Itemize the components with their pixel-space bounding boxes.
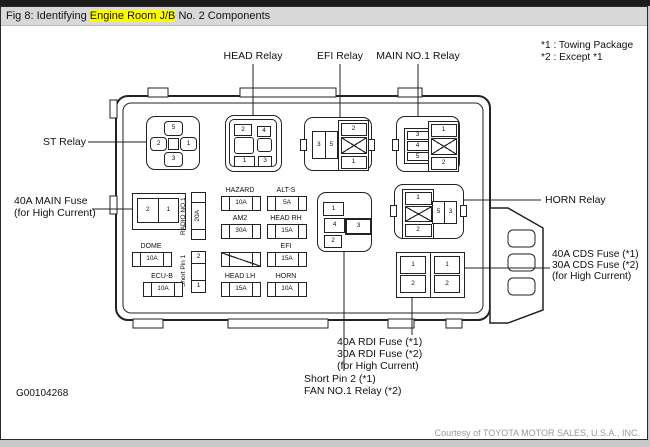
head-lh-fuse-amps: 15A <box>230 283 252 296</box>
st-relay-pin-top: 5 <box>164 121 183 136</box>
fan-relay-pin-4: 4 <box>324 218 345 233</box>
main-fuse-pin-1: 1 <box>158 199 179 222</box>
figure-viewer: Fig 8: Identifying Engine Room J/B No. 2… <box>0 0 650 447</box>
st-relay-pin-bottom: 3 <box>164 152 183 167</box>
head-relay-pin-2: 2 <box>234 124 252 136</box>
st-relay-pin-right: 1 <box>180 137 197 151</box>
dome-fuse-label: DOME <box>132 243 170 250</box>
hazard-fuse-label: HAZARD <box>221 187 259 194</box>
right-connector <box>490 208 543 323</box>
horn-relay-pin-5: 5 <box>433 202 444 223</box>
main-no1-relay-pins-345: 3 4 5 <box>404 128 431 164</box>
horn-relay-pins-53: 5 3 <box>432 201 457 224</box>
callout-short-pin2: Short Pin 2 (*1) FAN NO.1 Relay (*2) <box>304 373 401 397</box>
st-relay-pin-left: 2 <box>150 137 167 151</box>
callout-cds-fuse: 40A CDS Fuse (*1) 30A CDS Fuse (*2) (for… <box>552 249 639 282</box>
st-relay-center <box>168 138 179 150</box>
legend-note: *1 : Towing Package *2 : Except *1 <box>541 40 633 63</box>
callout-cds-line1: 40A CDS Fuse (*1) <box>552 249 639 260</box>
callout-main-fuse: 40A MAIN Fuse (for High Current) <box>14 195 96 219</box>
head-relay: 2 4 1 3 <box>225 115 282 172</box>
radio-no1-fuse: 20A <box>191 192 206 240</box>
main-no1-relay-pin-2: 2 <box>431 157 457 170</box>
horn-relay-pin-1: 1 <box>405 192 432 205</box>
alt-s-fuse: 5A <box>267 196 307 211</box>
efi-fuse: 15A <box>267 252 307 267</box>
head-relay-pin-4: 4 <box>257 126 271 137</box>
efi-relay-tab-left <box>300 139 307 151</box>
callout-head-relay: HEAD Relay <box>203 50 303 62</box>
legend-line-1: *1 : Towing Package <box>541 40 633 52</box>
dome-fuse: 10A <box>132 252 172 267</box>
fan-relay-pin-3: 3 <box>345 218 372 235</box>
dome-fuse-amps: 10A <box>141 253 163 266</box>
horn-relay-tab-right <box>460 205 467 217</box>
callout-rdi-line3: (for High Current) <box>337 360 422 372</box>
main-no1-relay-contact-box <box>431 138 457 155</box>
horn-fuse-label: HORN <box>267 273 305 280</box>
short-pin1-pin-1: 1 <box>192 280 205 292</box>
head-relay-pin-1: 1 <box>234 156 255 167</box>
legend-line-2: *2 : Except *1 <box>541 52 633 64</box>
callout-short-pin2-line2: FAN NO.1 Relay (*2) <box>304 385 401 397</box>
short-pin1: 2 1 <box>191 251 206 293</box>
callout-rdi-line2: 30A RDI Fuse (*2) <box>337 348 422 360</box>
callout-short-pin2-line1: Short Pin 2 (*1) <box>304 373 401 385</box>
head-relay-pin-3: 3 <box>258 156 272 167</box>
horn-fuse-amps: 10A <box>276 283 298 296</box>
hazard-fuse: 10A <box>221 196 261 211</box>
radio-no1-fuse-cap-bottom <box>192 229 205 239</box>
horn-relay-pin-2: 2 <box>405 224 432 237</box>
main-no1-relay-pin-1: 1 <box>431 124 457 137</box>
head-lh-fuse: 15A <box>221 282 261 297</box>
head-relay-coil-box <box>234 137 254 154</box>
head-rh-fuse: 15A <box>267 224 307 239</box>
rdi-fuse-pin-1: 1 <box>400 256 426 274</box>
main-no1-relay-pin-3: 3 <box>407 131 429 140</box>
main-no1-relay-tab-left <box>392 139 399 151</box>
horn-relay-tab-left <box>390 205 397 217</box>
head-rh-fuse-label: HEAD RH <box>267 215 305 222</box>
radio-no1-fuse-body: 20A <box>192 203 205 229</box>
head-rh-fuse-amps: 15A <box>276 225 298 238</box>
efi-relay-pin-5: 5 <box>325 132 338 158</box>
hazard-fuse-amps: 10A <box>230 197 252 210</box>
figure-code: G00104268 <box>16 388 68 399</box>
callout-horn-relay: HORN Relay <box>545 194 606 206</box>
callout-st-relay: ST Relay <box>6 136 86 148</box>
fan-no1-relay: 1 4 3 2 <box>317 192 372 252</box>
efi-relay-pin-3: 3 <box>313 132 325 158</box>
am2-fuse-label: AM2 <box>221 215 259 222</box>
callout-cds-line3: (for High Current) <box>552 271 639 282</box>
courtesy-note: Courtesy of TOYOTA MOTOR SALES, U.S.A., … <box>300 428 640 438</box>
efi-relay: 3 5 2 1 <box>304 117 372 171</box>
efi-relay-pin-2: 2 <box>341 123 367 136</box>
callout-main-fuse-line2: (for High Current) <box>14 207 96 219</box>
radio-no1-fuse-cap-top <box>192 193 205 203</box>
efi-relay-contact-box <box>341 137 367 154</box>
main-no1-relay: 3 4 5 1 2 <box>396 116 460 172</box>
callout-rdi-line1: 40A RDI Fuse (*1) <box>337 336 422 348</box>
efi-fuse-amps: 15A <box>276 253 298 266</box>
st-relay: 5 2 1 3 <box>146 116 200 170</box>
callout-main-no1-relay: MAIN NO.1 Relay <box>368 50 468 62</box>
alt-s-fuse-amps: 5A <box>276 197 298 210</box>
horn-relay: 1 2 5 3 <box>394 184 464 239</box>
ecu-b-fuse-amps: 10A <box>152 283 174 296</box>
callout-main-fuse-line1: 40A MAIN Fuse <box>14 195 96 207</box>
cds-fuse-pin-1: 1 <box>434 256 460 274</box>
efi-relay-pin-1: 1 <box>341 156 367 169</box>
main-fuse: 2 1 <box>132 193 186 230</box>
horn-relay-contact-box <box>405 206 432 222</box>
horn-fuse: 10A <box>267 282 307 297</box>
short-pin1-body <box>192 264 205 280</box>
rdi-fuse: 1 2 <box>396 252 431 298</box>
radio-no1-fuse-amps: 20A <box>195 210 202 222</box>
head-relay-side-box <box>257 138 272 152</box>
callout-rdi-fuse: 40A RDI Fuse (*1) 30A RDI Fuse (*2) (for… <box>337 336 422 372</box>
horn-relay-pin-3: 3 <box>444 202 456 223</box>
head-lh-fuse-label: HEAD LH <box>221 273 259 280</box>
efi-relay-tab-right <box>368 139 375 151</box>
callout-cds-line2: 30A CDS Fuse (*2) <box>552 260 639 271</box>
efi-relay-stack: 2 1 <box>338 120 369 171</box>
rdi-fuse-pin-2: 2 <box>400 275 426 293</box>
cds-fuse-pin-2: 2 <box>434 275 460 293</box>
ecu-b-fuse-label: ECU-B <box>143 273 181 280</box>
efi-relay-pins-35: 3 5 <box>312 131 338 159</box>
alt-s-fuse-label: ALT-S <box>267 187 305 194</box>
ecu-b-fuse: 10A <box>143 282 183 297</box>
short-pin1-pin-2: 2 <box>192 252 205 264</box>
main-no1-relay-pin-5: 5 <box>407 152 429 161</box>
main-no1-relay-stack: 1 2 <box>428 121 459 172</box>
horn-relay-stack: 1 2 <box>402 189 434 239</box>
efi-fuse-label: EFI <box>267 243 305 250</box>
am2-fuse-amps: 30A <box>230 225 252 238</box>
main-fuse-pin-2: 2 <box>138 199 158 222</box>
cds-fuse: 1 2 <box>430 252 465 298</box>
radio-no1-fuse-label: RADIO NO.1 <box>181 194 188 238</box>
fan-relay-pin-2: 2 <box>324 235 342 248</box>
empty-fuse-slot <box>221 252 261 267</box>
fan-relay-pin-1: 1 <box>323 202 344 216</box>
am2-fuse: 30A <box>221 224 261 239</box>
main-fuse-inner: 2 1 <box>137 198 179 223</box>
main-no1-relay-pin-4: 4 <box>407 141 429 150</box>
